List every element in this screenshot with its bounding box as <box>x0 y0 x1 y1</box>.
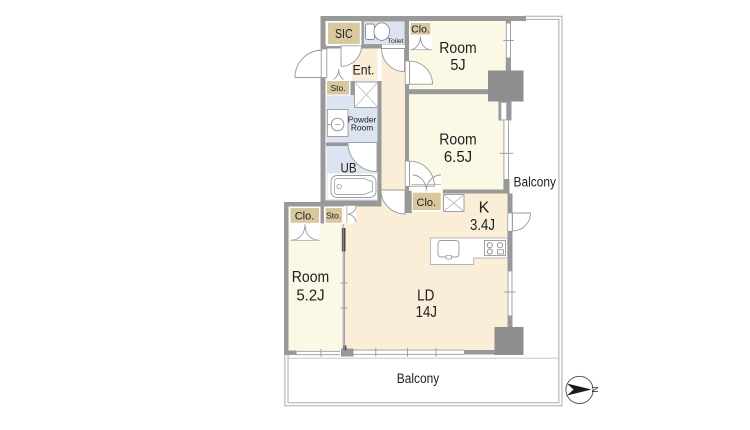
svg-text:5.2J: 5.2J <box>296 288 324 305</box>
svg-text:Ent.: Ent. <box>353 62 375 78</box>
svg-text:Balcony: Balcony <box>397 371 440 386</box>
svg-text:Sto.: Sto. <box>330 83 345 93</box>
svg-text:Room: Room <box>351 123 373 133</box>
svg-text:14J: 14J <box>416 304 437 321</box>
svg-text:UB: UB <box>341 160 357 176</box>
svg-text:Room: Room <box>439 132 476 149</box>
svg-text:3.4J: 3.4J <box>470 217 495 234</box>
svg-text:SIC: SIC <box>335 26 353 41</box>
svg-text:Clo.: Clo. <box>417 197 437 209</box>
svg-text:5J: 5J <box>450 57 465 74</box>
svg-text:Clo.: Clo. <box>411 23 430 35</box>
svg-text:Toilet: Toilet <box>388 38 404 45</box>
svg-text:Clo.: Clo. <box>295 210 315 222</box>
svg-text:K: K <box>479 200 490 217</box>
svg-text:6.5J: 6.5J <box>444 149 472 166</box>
svg-text:Room: Room <box>292 269 329 286</box>
svg-text:Balcony: Balcony <box>514 175 557 190</box>
svg-text:Sto.: Sto. <box>326 211 341 221</box>
svg-text:LD: LD <box>417 288 434 305</box>
svg-text:N: N <box>590 386 600 392</box>
svg-text:Room: Room <box>439 40 476 57</box>
